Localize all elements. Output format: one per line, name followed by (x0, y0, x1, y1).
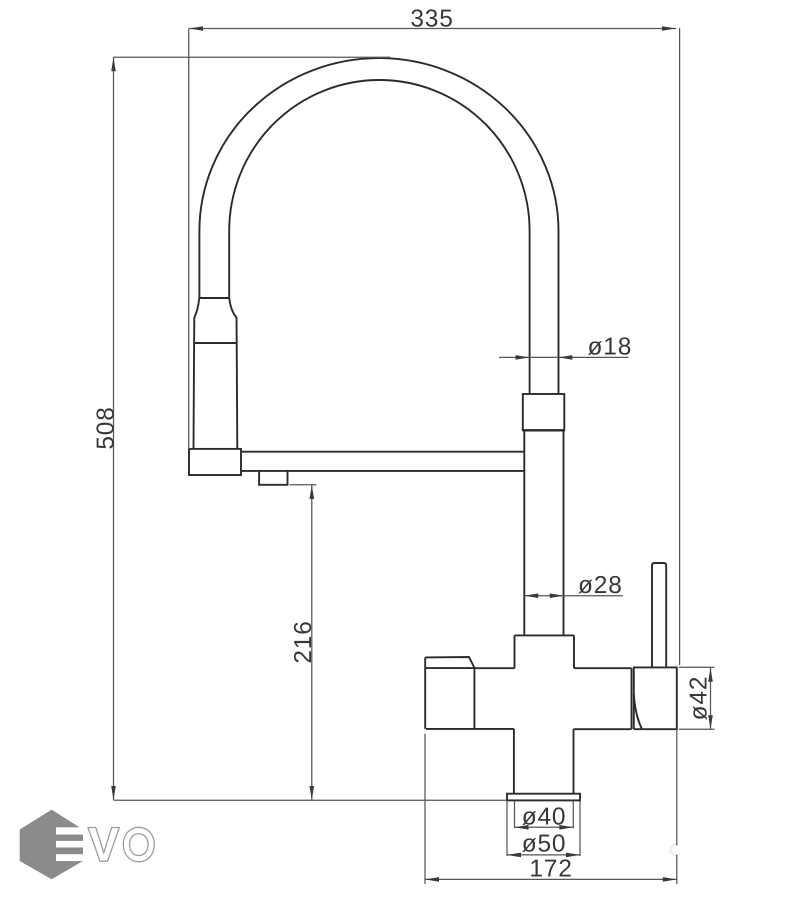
svg-text:ø28: ø28 (578, 572, 623, 599)
svg-text:ø40: ø40 (522, 804, 567, 831)
svg-text:ø18: ø18 (588, 334, 633, 361)
svg-text:508: 508 (92, 406, 119, 449)
svg-text:ø42: ø42 (686, 676, 713, 721)
svg-text:172: 172 (529, 856, 572, 883)
svg-text:335: 335 (410, 6, 453, 33)
svg-text:216: 216 (290, 620, 317, 663)
svg-text:ø50: ø50 (522, 831, 567, 858)
